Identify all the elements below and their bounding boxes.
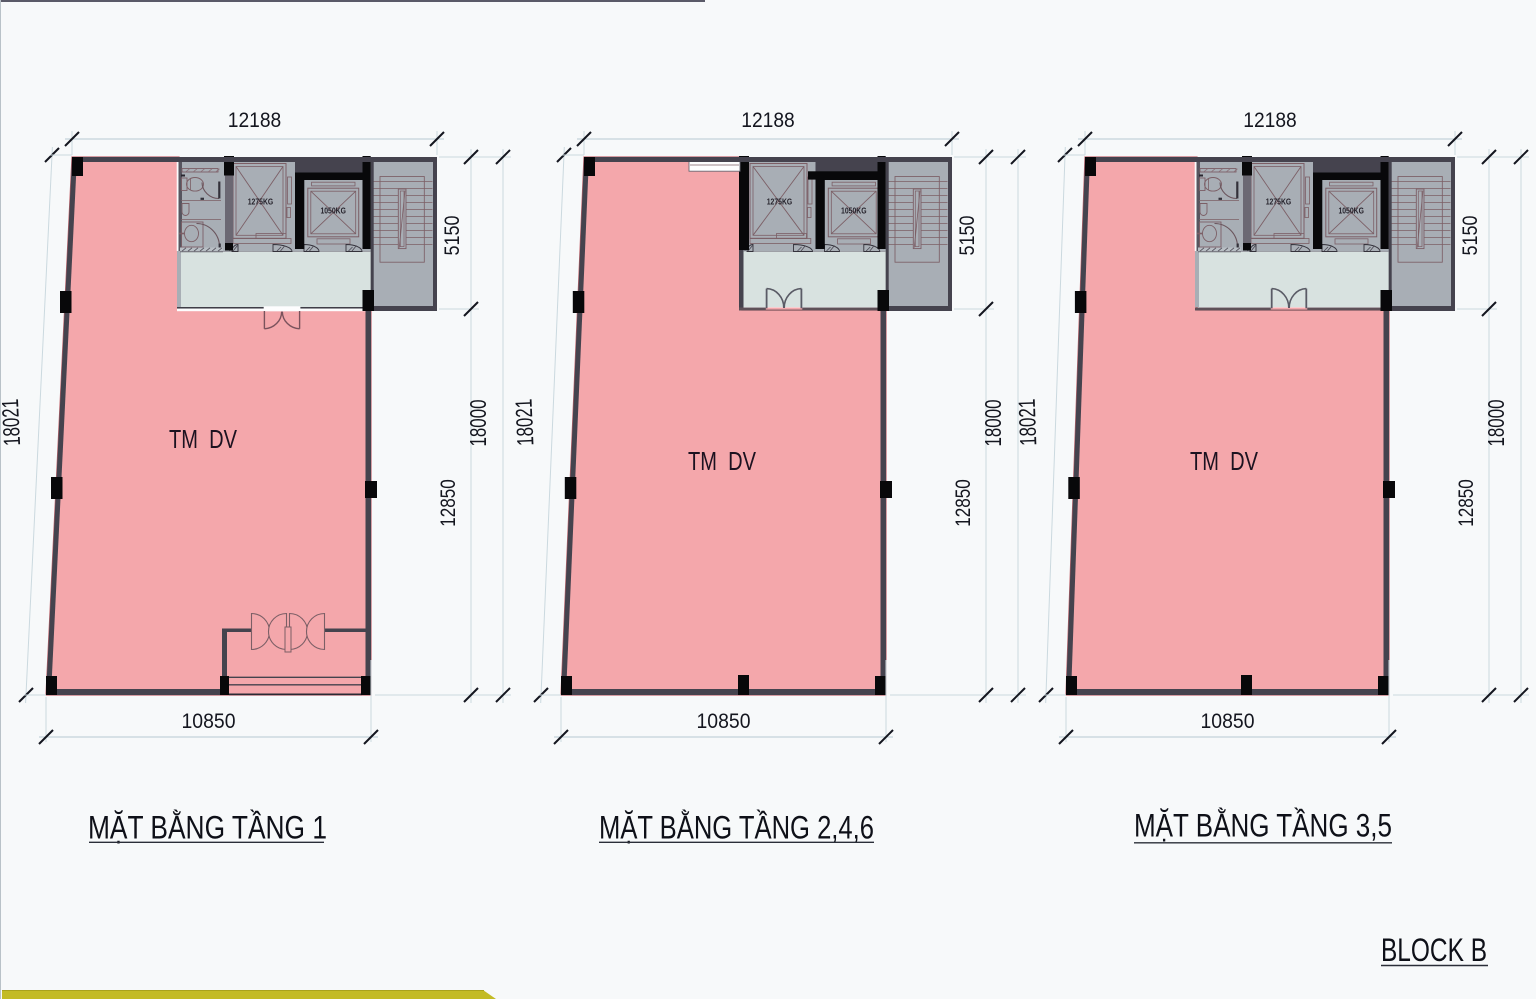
svg-text:1050KG: 1050KG [320,207,346,216]
svg-text:10850: 10850 [1201,710,1255,733]
svg-text:1275KG: 1275KG [248,198,274,207]
svg-text:1050KG: 1050KG [841,207,867,216]
svg-text:MẶT BẰNG TẦNG 1: MẶT BẰNG TẦNG 1 [88,809,327,846]
svg-text:18000: 18000 [465,400,491,447]
svg-text:10850: 10850 [182,710,236,733]
svg-text:1275KG: 1275KG [767,198,793,207]
svg-text:5150: 5150 [956,216,979,256]
svg-text:TM DV: TM DV [688,448,756,476]
svg-text:12850: 12850 [437,479,460,527]
svg-text:TM DV: TM DV [1190,448,1258,476]
svg-text:12188: 12188 [741,109,795,132]
svg-text:BLOCK B: BLOCK B [1381,932,1487,968]
svg-text:12188: 12188 [1243,109,1297,132]
svg-text:18021: 18021 [1014,398,1042,446]
svg-text:18000: 18000 [980,400,1006,447]
svg-text:18021: 18021 [0,398,25,446]
svg-text:1050KG: 1050KG [1338,207,1364,216]
svg-text:18021: 18021 [511,398,539,446]
svg-text:1275KG: 1275KG [1266,198,1292,207]
svg-text:12188: 12188 [228,109,282,132]
svg-text:5150: 5150 [1459,216,1482,256]
svg-text:TM DV: TM DV [169,426,237,454]
svg-text:10850: 10850 [697,710,751,733]
svg-text:18000: 18000 [1483,400,1509,447]
svg-text:12850: 12850 [952,479,975,527]
svg-text:MẶT BẰNG TẦNG 3,5: MẶT BẰNG TẦNG 3,5 [1134,807,1392,844]
svg-text:MẶT BẰNG TẦNG 2,4,6: MẶT BẰNG TẦNG 2,4,6 [599,809,874,846]
svg-text:5150: 5150 [441,216,464,256]
svg-text:12850: 12850 [1455,479,1478,527]
